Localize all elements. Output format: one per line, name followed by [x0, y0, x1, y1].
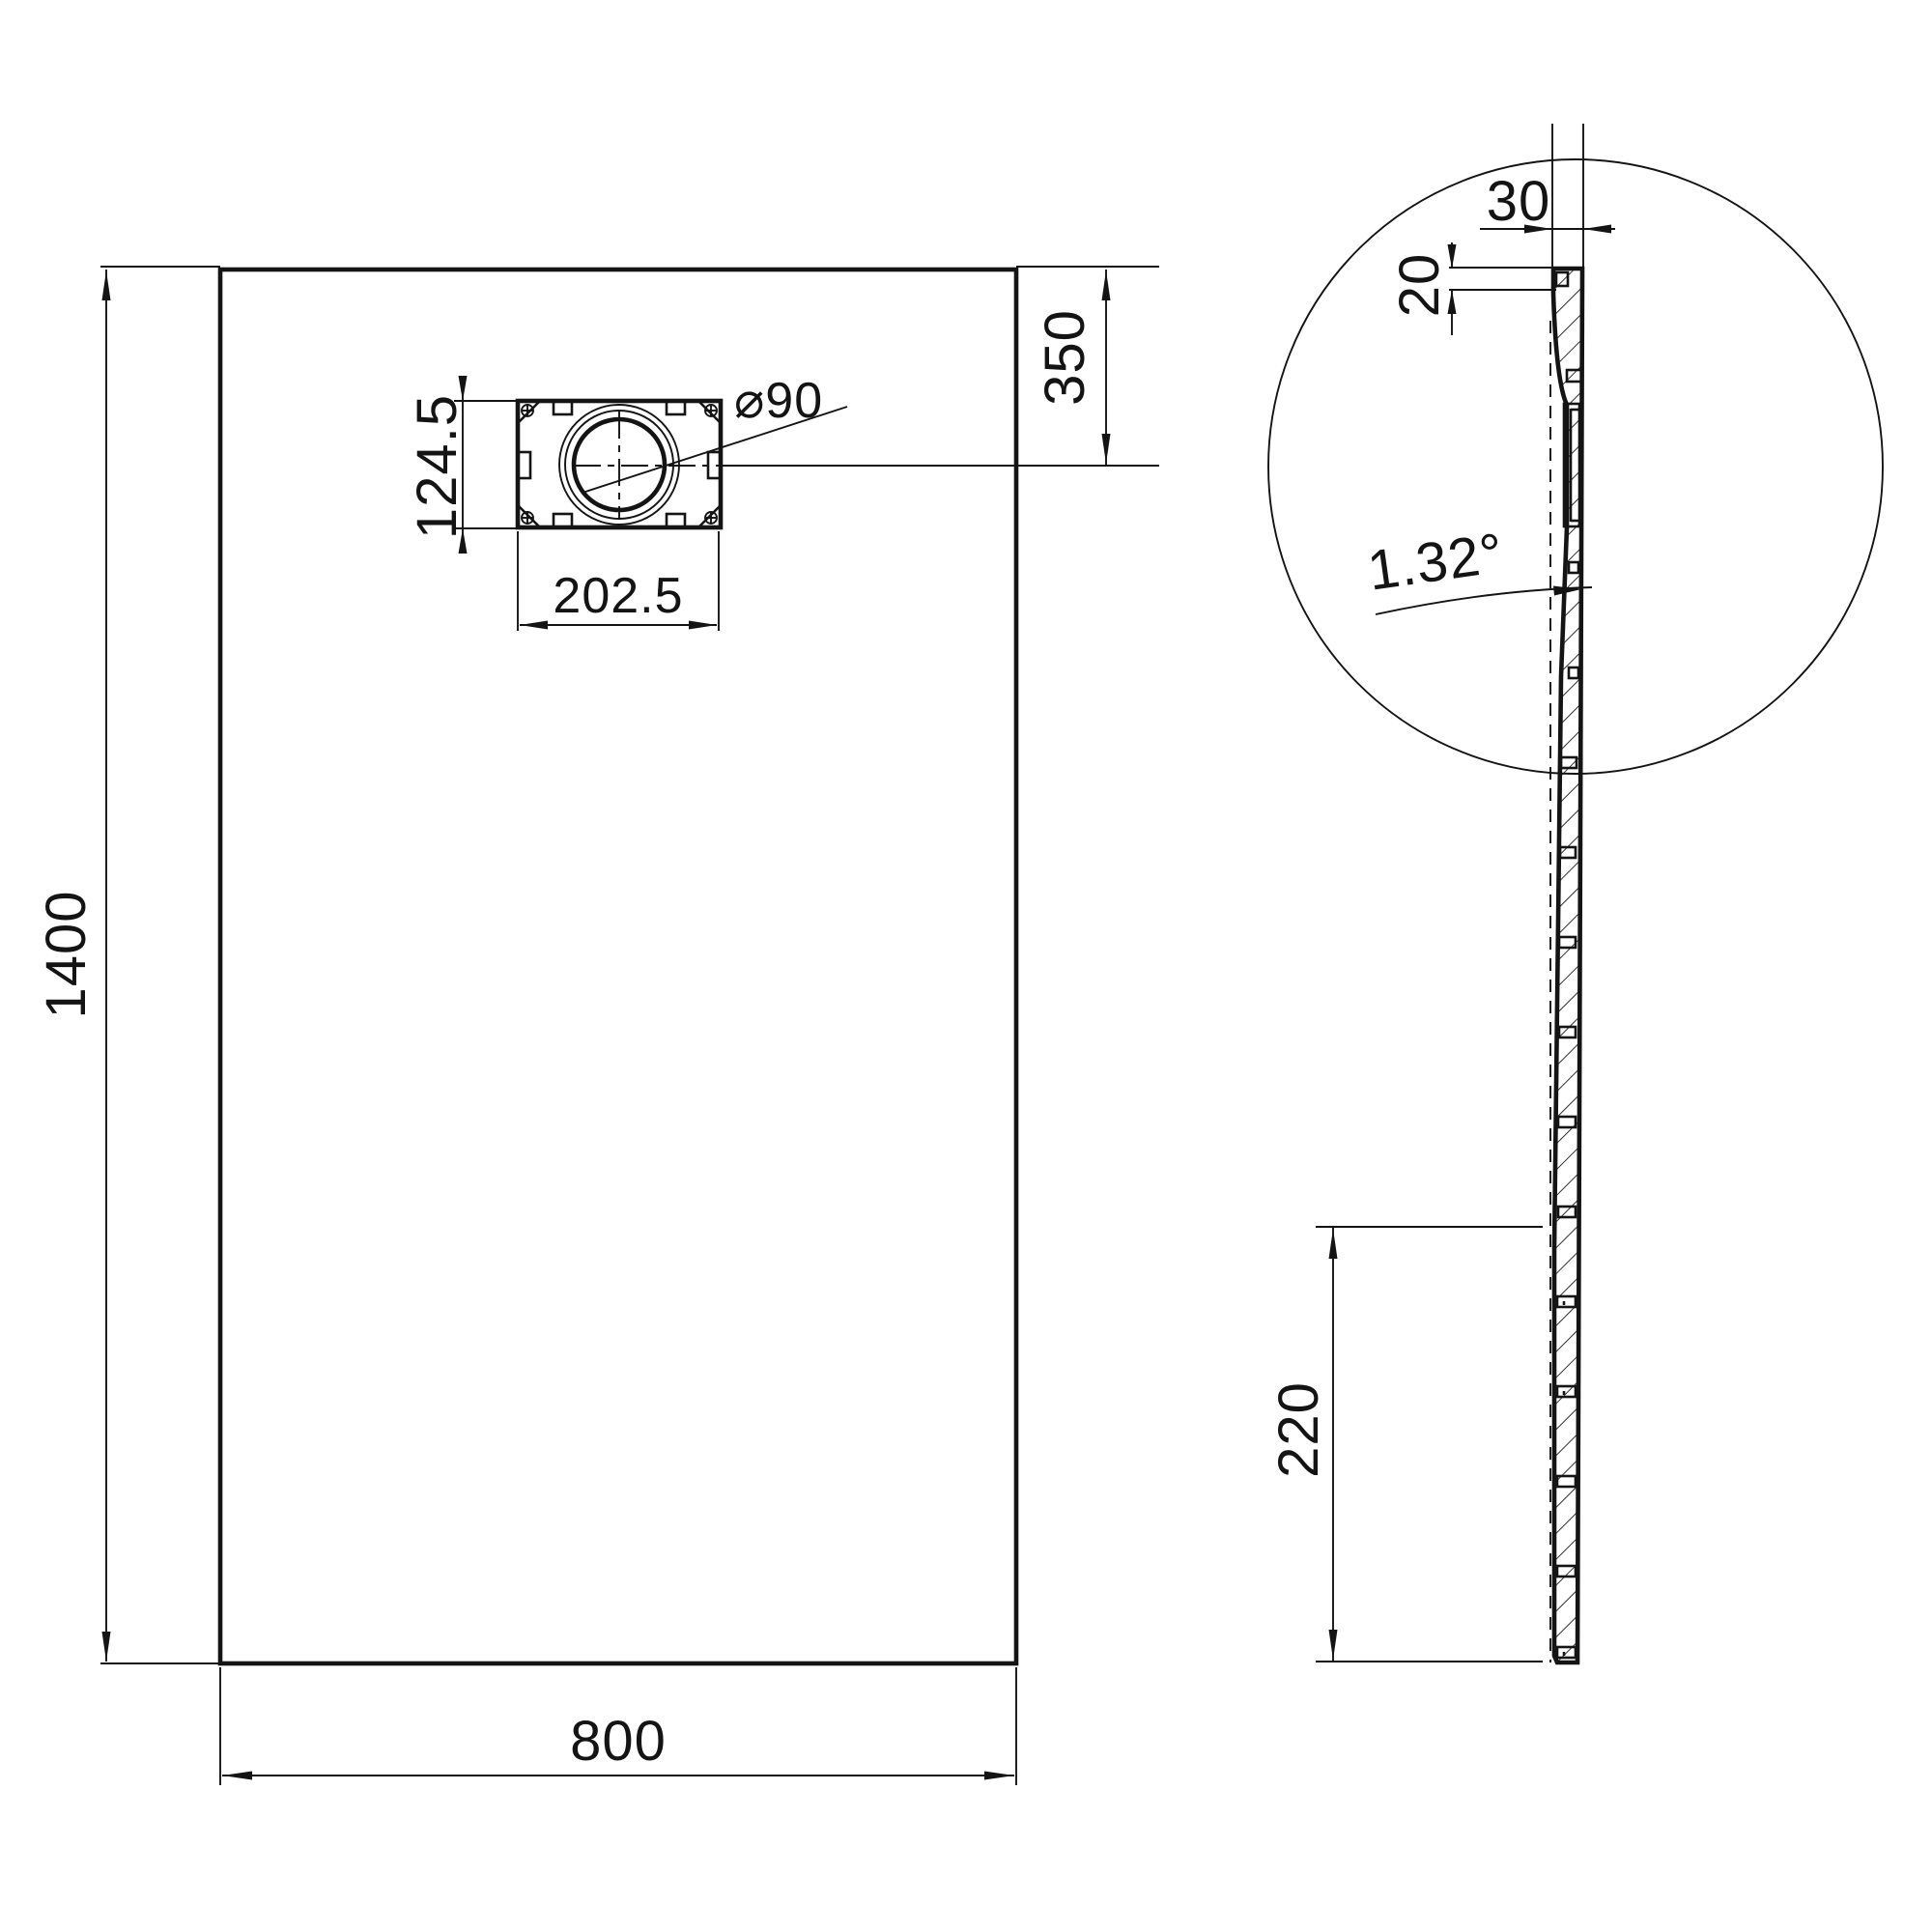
dimension-350-label: 350: [1034, 309, 1096, 406]
drain-flange: [518, 401, 734, 527]
shower-tray-dimension-drawing: 1400 800 350: [0, 0, 1932, 1932]
dimension-dia90-label: ⌀90: [734, 373, 823, 429]
dimension-350: 350: [734, 270, 1159, 466]
tray-outline: [220, 270, 1016, 1663]
dimension-202-5-label: 202.5: [553, 568, 683, 624]
dimension-slope-angle: 1.32°: [1364, 522, 1592, 614]
dimension-dia90: ⌀90: [582, 373, 847, 493]
dimension-slope-angle-label: 1.32°: [1364, 522, 1508, 603]
dimension-124-5-label: 124.5: [406, 394, 469, 539]
side-view: 30 20 1.32° 220: [1267, 124, 1883, 1662]
dimension-20-label: 20: [1388, 253, 1451, 318]
dimension-800-label: 800: [570, 1710, 667, 1773]
dimension-124-5: 124.5: [406, 376, 516, 554]
technical-drawing-canvas: 1400 800 350: [0, 0, 1932, 1932]
dimension-30-label: 30: [1487, 170, 1551, 233]
dimension-202-5: 202.5: [518, 531, 719, 631]
dimension-220: 220: [1267, 1227, 1543, 1662]
dimension-1400-label: 1400: [35, 890, 98, 1018]
dimension-220-label: 220: [1267, 1381, 1330, 1478]
dimension-30: 30: [1480, 124, 1615, 272]
front-view: 1400 800 350: [35, 267, 1159, 1785]
dimension-20: 20: [1388, 242, 1556, 335]
dimension-1400: 1400: [35, 270, 111, 1662]
dimension-800: 800: [222, 1710, 1014, 1780]
